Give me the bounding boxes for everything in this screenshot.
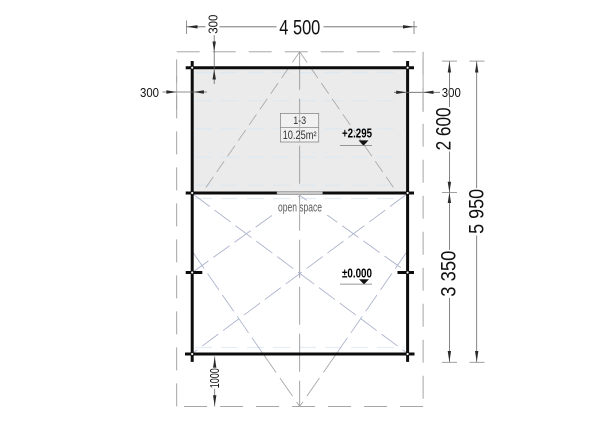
svg-text:300: 300 — [140, 85, 159, 100]
svg-text:±0.000: ±0.000 — [342, 265, 372, 280]
svg-text:2 600: 2 600 — [433, 107, 456, 150]
svg-text:1-3: 1-3 — [293, 115, 306, 127]
svg-text:300: 300 — [442, 85, 461, 100]
svg-text:300: 300 — [206, 15, 221, 34]
svg-text:3 350: 3 350 — [438, 251, 461, 297]
svg-text:5 950: 5 950 — [466, 189, 489, 234]
svg-text:+2.295: +2.295 — [342, 126, 372, 141]
svg-text:10.25m²: 10.25m² — [283, 130, 317, 142]
svg-text:1000: 1000 — [207, 368, 222, 388]
svg-text:4 500: 4 500 — [279, 17, 320, 40]
